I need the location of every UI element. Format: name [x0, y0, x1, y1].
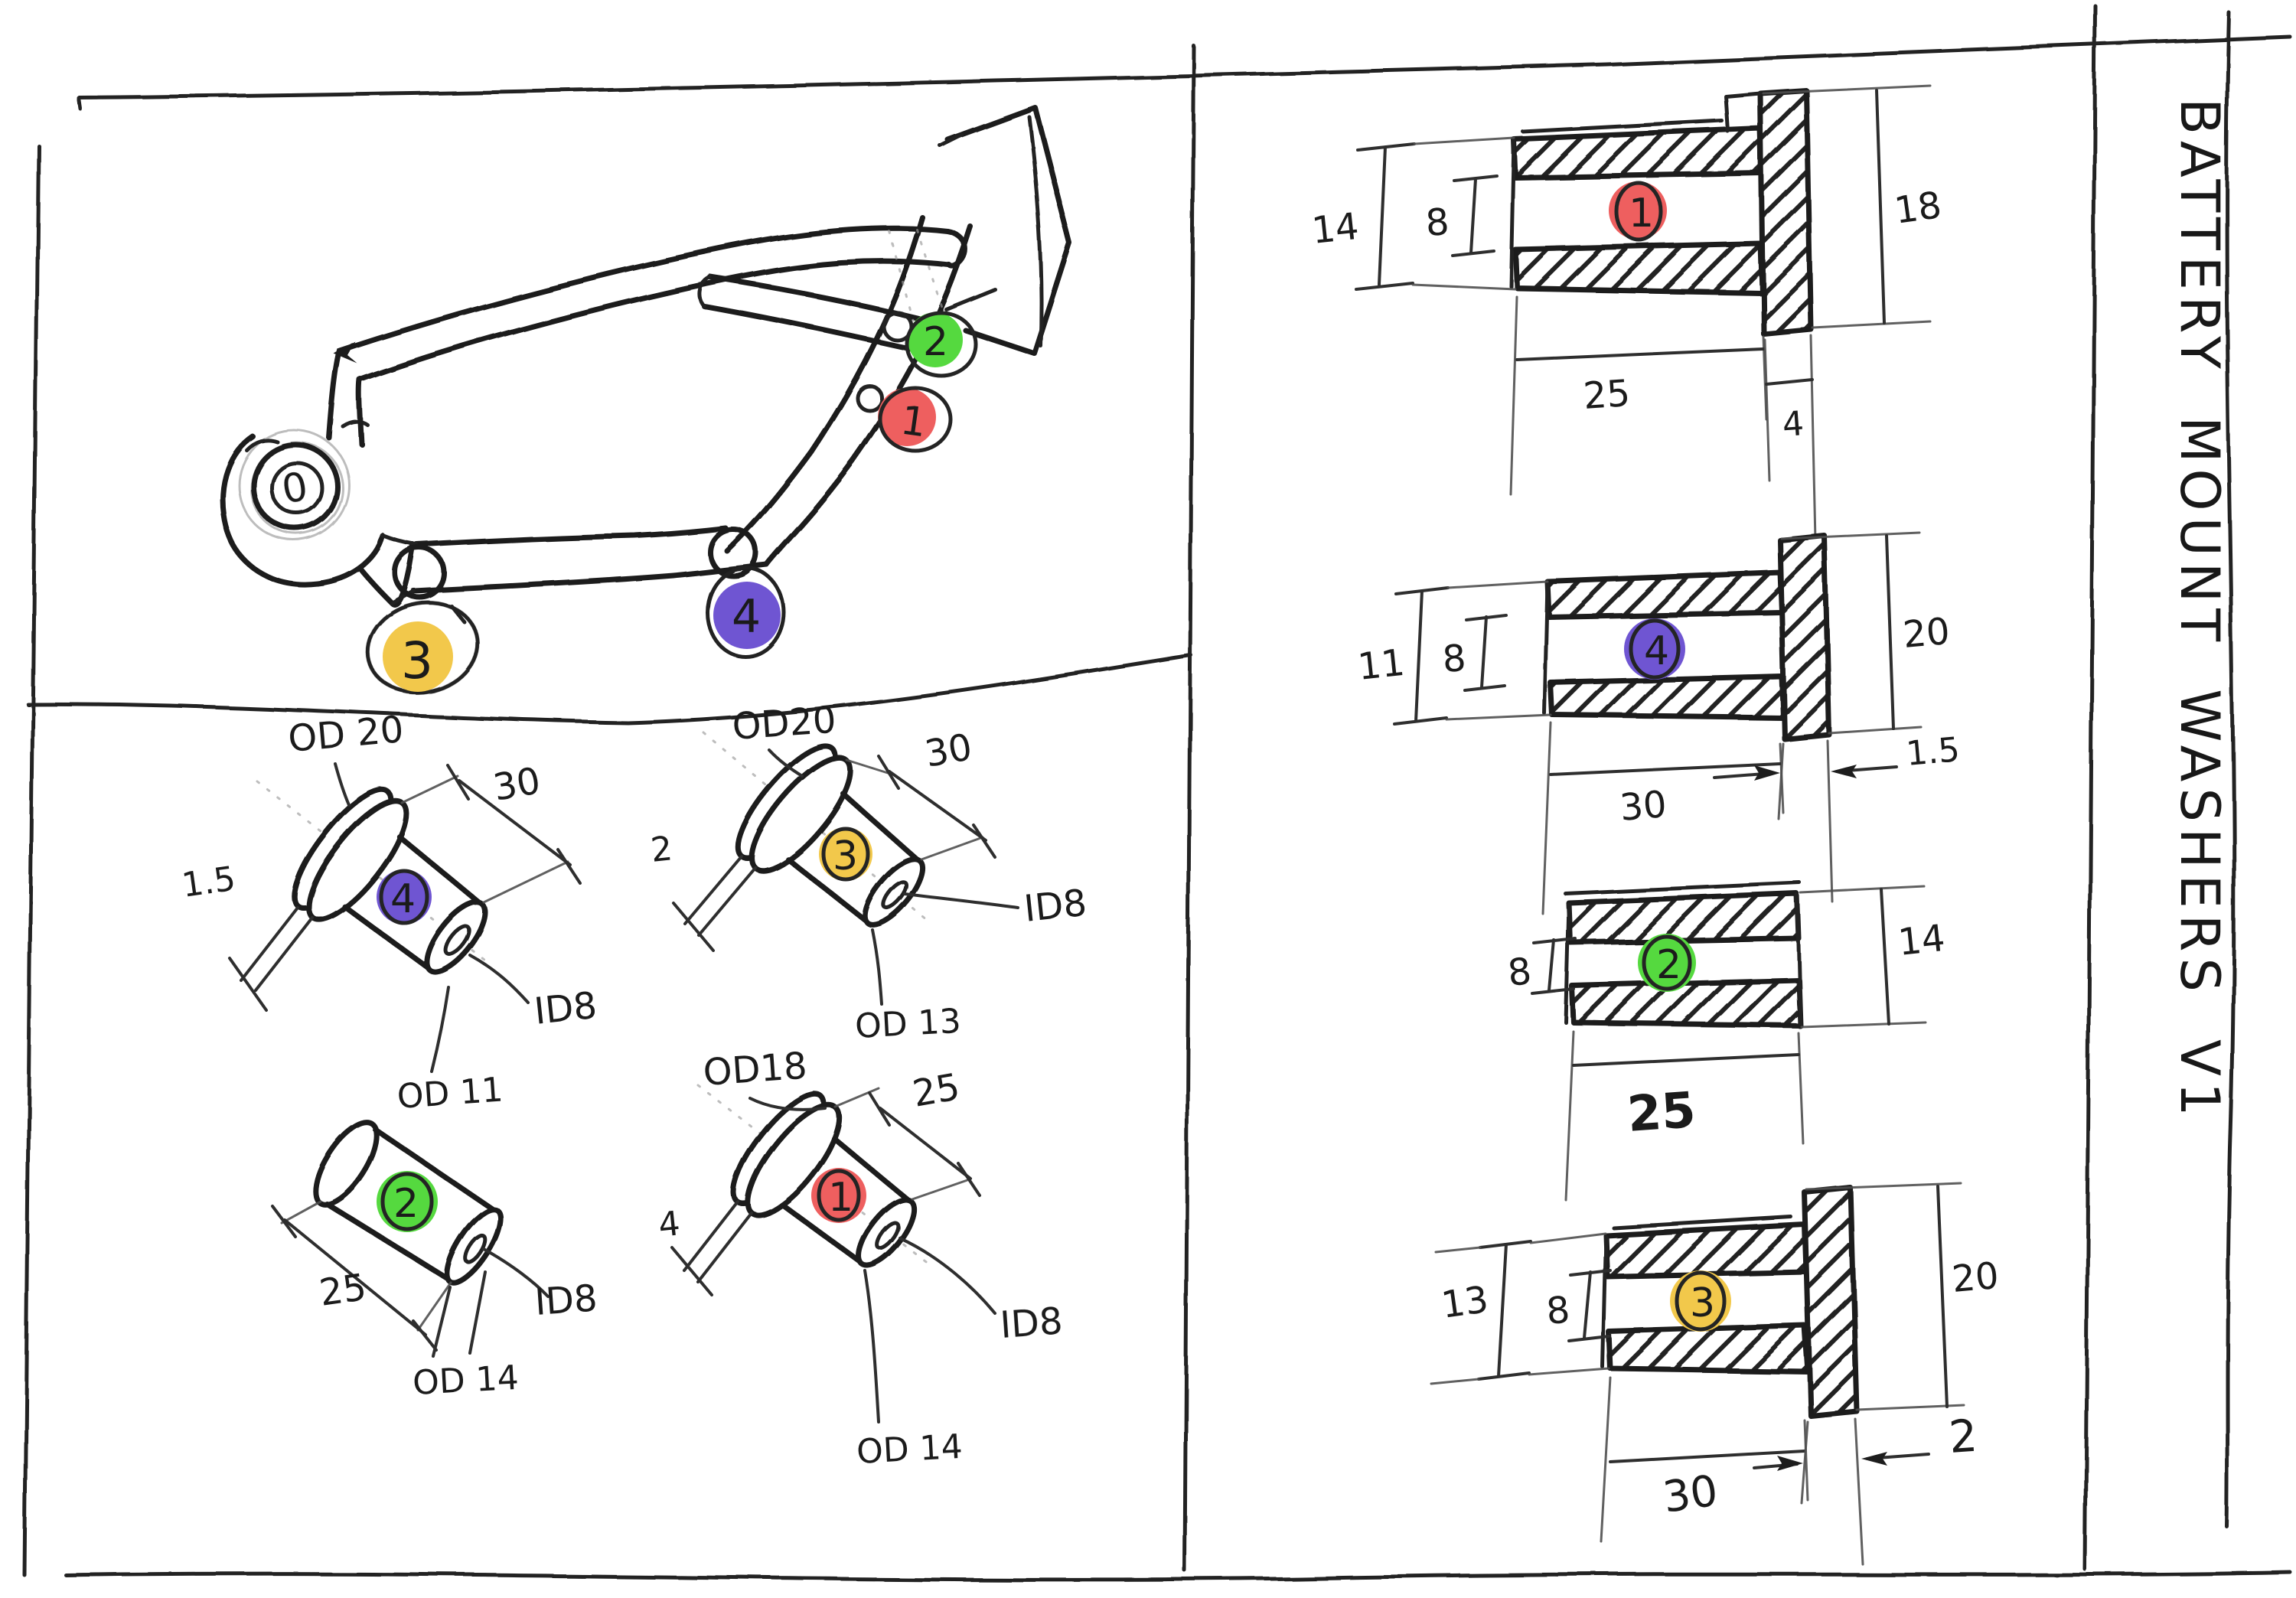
cross-section-part2: 2 8 14 25	[1505, 883, 1947, 1200]
iso4-marker-num: 4	[390, 876, 416, 922]
sketch-sheet: 0 1 2 3 4	[0, 0, 2296, 1598]
cs4-flange-od-line	[1887, 536, 1893, 729]
iso4-len-ext-2	[484, 862, 568, 902]
bottom-rail-upper	[417, 528, 726, 545]
cs3-ft-ext	[1802, 1419, 1863, 1564]
iso4-len-ext-1	[402, 776, 458, 803]
cs3-ft-arrowhead-left	[1777, 1456, 1803, 1471]
iso4-od-top-leader	[335, 764, 349, 805]
cs4-flange	[1780, 536, 1829, 739]
iso3-od-end-leader	[872, 930, 882, 1004]
iso2-len-tick-b	[413, 1321, 436, 1350]
frame-marker-1: 1	[878, 388, 951, 451]
iso-view-part1: 1 OD18 25 4 ID8 OD 14	[657, 1045, 1064, 1472]
iso4-bore-label: ID8	[532, 984, 598, 1033]
stray-leader	[946, 289, 995, 309]
cs1-ft-dimline	[1766, 380, 1812, 384]
cs2-len-dimline	[1574, 1055, 1799, 1065]
cs3-marker-num: 3	[1690, 1280, 1715, 1326]
cs1-len-ext	[1511, 297, 1766, 494]
iso1-od-end-label: OD 14	[856, 1427, 964, 1472]
iso2-dimensions: 25 ID8 OD 14	[272, 1202, 598, 1403]
cs3-flange-od-label: 20	[1950, 1254, 2001, 1301]
iso2-bore-label: ID8	[533, 1277, 598, 1324]
cs2-bottom-wall	[1572, 980, 1800, 1026]
pencil-guide-1	[917, 230, 941, 306]
cs4-top-wall	[1548, 572, 1782, 617]
iso2-od-end-leader-2	[470, 1272, 485, 1353]
cs2-marker-num: 2	[1656, 942, 1681, 988]
cs1-flange-od-label: 18	[1892, 184, 1944, 233]
cs2-od-line	[1881, 889, 1889, 1024]
iso4-od-top-label: OD 20	[286, 708, 405, 761]
cs2-bore-label: 8	[1505, 950, 1533, 995]
sketch-canvas: 0 1 2 3 4	[0, 0, 2296, 1598]
cross-section-part1: 1 14 8 18 25 4	[1309, 86, 1944, 540]
cs1-bottom-wall	[1515, 243, 1762, 292]
iso-view-part2: 2 25 ID8 OD 14	[272, 1113, 598, 1403]
cs1-top-wall	[1514, 129, 1762, 178]
cs3-len-dimline	[1610, 1451, 1805, 1462]
frame-marker-4: 4	[713, 582, 781, 649]
iso3-flange-dim-2	[699, 868, 755, 935]
marker3-num: 3	[401, 631, 433, 690]
iso1-od-top-label: OD18	[702, 1045, 808, 1094]
cs4-ft-label: 1.5	[1905, 730, 1962, 774]
iso1-flange-label: 4	[657, 1204, 682, 1245]
iso1-len-ext-2	[912, 1180, 967, 1199]
lug-top-tick	[343, 422, 367, 426]
cs3-top-wall	[1606, 1225, 1806, 1277]
seat-plate	[947, 107, 1070, 354]
iso4-flange-dim-2	[256, 918, 312, 990]
cs3-od-label: 13	[1439, 1278, 1491, 1327]
iso3-len-ext-2	[921, 837, 983, 859]
iso1-len-dimline	[880, 1108, 970, 1179]
cross-section-part3: 3 13 8 20 30 2	[1431, 1183, 2001, 1564]
cs4-bore-label: 8	[1441, 637, 1467, 681]
cs1-ft-label: 4	[1781, 404, 1805, 445]
border-bottom	[66, 1572, 2290, 1580]
cs4-bottom-wall	[1551, 677, 1783, 718]
iso1-flange-dim-2	[698, 1213, 752, 1282]
top-tube-lower	[359, 261, 949, 444]
cs1-flange-step	[1726, 93, 1760, 132]
cs4-od-label: 11	[1355, 641, 1407, 689]
sheet-title: BATTERY MOUNT WASHERS V1	[2168, 98, 2231, 1123]
iso-view-part3: 3 OD20 30 2 ID8 OD 13	[649, 699, 1089, 1046]
cs3-flange-od-line	[1938, 1186, 1947, 1407]
hub-label: 0	[279, 464, 311, 514]
cs4-length-label: 30	[1618, 783, 1668, 830]
iso-view-part4: 4 OD 20 30 1.5 ID8 OD 11	[179, 708, 598, 1117]
iso1-length-label: 25	[909, 1065, 963, 1116]
iso3-flange-label: 2	[649, 829, 674, 870]
iso1-od-end-leader	[865, 1270, 879, 1422]
cs4-flange-od-label: 20	[1901, 610, 1952, 657]
iso4-bore-leader	[470, 955, 528, 1003]
iso3-bore-leader	[905, 894, 1018, 908]
iso4-flange-label: 1.5	[179, 859, 237, 905]
cs3-ft-label: 2	[1947, 1410, 1979, 1463]
frame-marker-3: 3	[383, 621, 453, 692]
iso3-length-label: 30	[921, 726, 975, 776]
iso4-len-tick-b	[558, 850, 580, 883]
cs2-top-wall	[1569, 894, 1799, 943]
marker4-num: 4	[732, 590, 761, 644]
iso3-marker-num: 3	[833, 833, 858, 879]
iso3-dimensions: OD20 30 2 ID8 OD 13	[649, 699, 1089, 1046]
frame-marker-2: 2	[907, 312, 976, 376]
iso1-bore-label: ID8	[999, 1300, 1064, 1347]
cs4-len-dimline	[1551, 764, 1780, 775]
cs1-od-label: 14	[1309, 205, 1361, 253]
cs4-left-end	[1544, 583, 1548, 713]
iso1-flange-dim-1	[684, 1202, 738, 1270]
iso1-bore-leader	[900, 1238, 995, 1313]
cs2-length-label: 25	[1626, 1082, 1698, 1143]
cs3-bottom-wall	[1609, 1326, 1808, 1371]
cs1-marker-num: 1	[1629, 191, 1654, 236]
iso1-marker-num: 1	[828, 1175, 853, 1221]
iso1-len-tick-a	[869, 1093, 889, 1125]
cs4-ft-ext	[1779, 741, 1832, 902]
cs1-flange-od-line	[1877, 90, 1884, 323]
cs4-marker-num: 4	[1644, 628, 1669, 674]
cs1-length-label: 25	[1582, 372, 1632, 418]
iso3-len-dimline	[889, 771, 986, 840]
iso3-len-tick-b	[974, 825, 995, 857]
iso3-od-end-label: OD 13	[854, 1002, 962, 1046]
iso4-flange-dim-1	[241, 908, 298, 980]
divider-vertical-main	[1185, 46, 1194, 1570]
iso3-bore-label: ID8	[1022, 882, 1088, 931]
iso2-len-ext-1	[282, 1202, 321, 1223]
cs1-bore-bracket	[1453, 176, 1497, 256]
cs1-flange	[1760, 90, 1811, 334]
cs2-top-double	[1566, 883, 1800, 894]
iso2-marker-num: 2	[393, 1181, 419, 1227]
iso3-flange-dim-1	[685, 856, 742, 924]
border-left	[24, 145, 38, 1575]
iso2-length-label: 25	[317, 1266, 369, 1315]
mount-hole-lower	[857, 386, 882, 410]
iso2-len-tick-a	[272, 1206, 295, 1237]
iso1-len-tick-b	[958, 1163, 980, 1195]
iso4-len-tick-a	[448, 765, 468, 799]
marker2-num: 2	[923, 319, 948, 365]
iso3-od-top-label: OD20	[731, 699, 837, 748]
iso2-od-end-label: OD 14	[412, 1358, 520, 1403]
iso4-length-label: 30	[490, 759, 543, 810]
iso4-od-end-label: OD 11	[396, 1070, 504, 1117]
cs3-left-end	[1603, 1237, 1606, 1367]
divider-horizontal	[28, 655, 1191, 722]
seat-plate-inner	[1029, 116, 1042, 346]
divider-title-column	[2085, 6, 2095, 1569]
cs3-bore-label: 8	[1544, 1289, 1571, 1333]
cs1-bore-label: 8	[1424, 201, 1450, 245]
iso2-end-face	[438, 1202, 510, 1291]
border-top	[79, 37, 2290, 109]
cs2-left-end	[1566, 905, 1569, 1022]
sheet-borders	[24, 6, 2290, 1580]
cs3-length-label: 30	[1660, 1466, 1721, 1523]
frame-sketch: 0 1 2 3 4	[223, 107, 1070, 704]
cross-section-part4: 4 11 8 20 30 1.5	[1355, 533, 1961, 914]
cs2-od-label: 14	[1896, 917, 1947, 964]
cs1-od-bracket	[1356, 144, 1414, 289]
cs3-flange	[1805, 1188, 1857, 1416]
cs1-len-dimline	[1517, 349, 1763, 360]
cs4-bore-bracket	[1465, 615, 1506, 690]
iso4-od-end-leader	[432, 987, 448, 1071]
